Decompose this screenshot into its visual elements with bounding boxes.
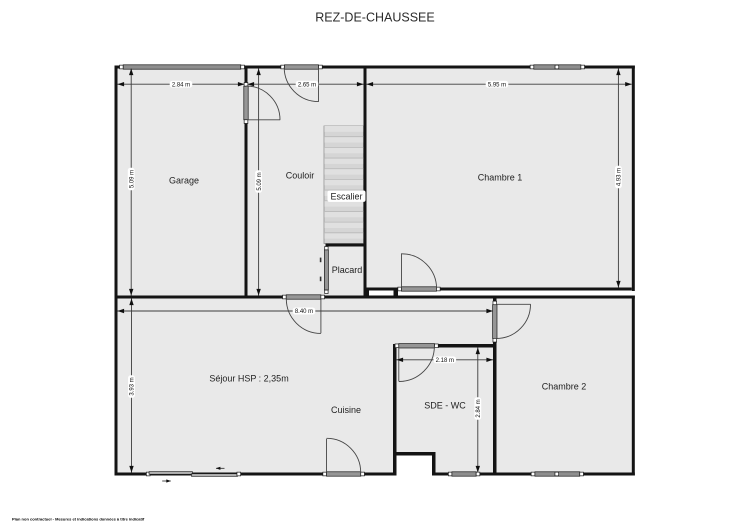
svg-text:Couloir: Couloir — [286, 171, 315, 181]
svg-text:5.09 m: 5.09 m — [129, 170, 135, 188]
svg-text:2.65 m: 2.65 m — [298, 82, 316, 88]
svg-text:Chambre 1: Chambre 1 — [478, 172, 523, 182]
svg-text:2.84 m: 2.84 m — [476, 399, 482, 417]
svg-text:4.93 m: 4.93 m — [617, 168, 623, 186]
svg-text:Séjour HSP : 2,35m: Séjour HSP : 2,35m — [209, 373, 288, 383]
svg-text:Escalier: Escalier — [330, 192, 362, 202]
svg-text:8.40 m: 8.40 m — [295, 309, 313, 315]
svg-text:Chambre 2: Chambre 2 — [542, 381, 587, 391]
svg-text:2.84 m: 2.84 m — [172, 82, 190, 88]
svg-text:Plan non contractuel - Mesures: Plan non contractuel - Mesures et indica… — [12, 517, 145, 522]
svg-text:Garage: Garage — [169, 176, 199, 186]
svg-text:Cuisine: Cuisine — [331, 405, 361, 415]
svg-text:SDE - WC: SDE - WC — [424, 401, 466, 411]
svg-text:5.09 m: 5.09 m — [257, 172, 263, 190]
svg-text:2.18 m: 2.18 m — [436, 358, 454, 364]
svg-text:5.95 m: 5.95 m — [488, 82, 506, 88]
svg-text:REZ-DE-CHAUSSEE: REZ-DE-CHAUSSEE — [315, 11, 434, 25]
svg-text:Placard: Placard — [332, 265, 363, 275]
svg-text:3.93 m: 3.93 m — [130, 377, 136, 395]
